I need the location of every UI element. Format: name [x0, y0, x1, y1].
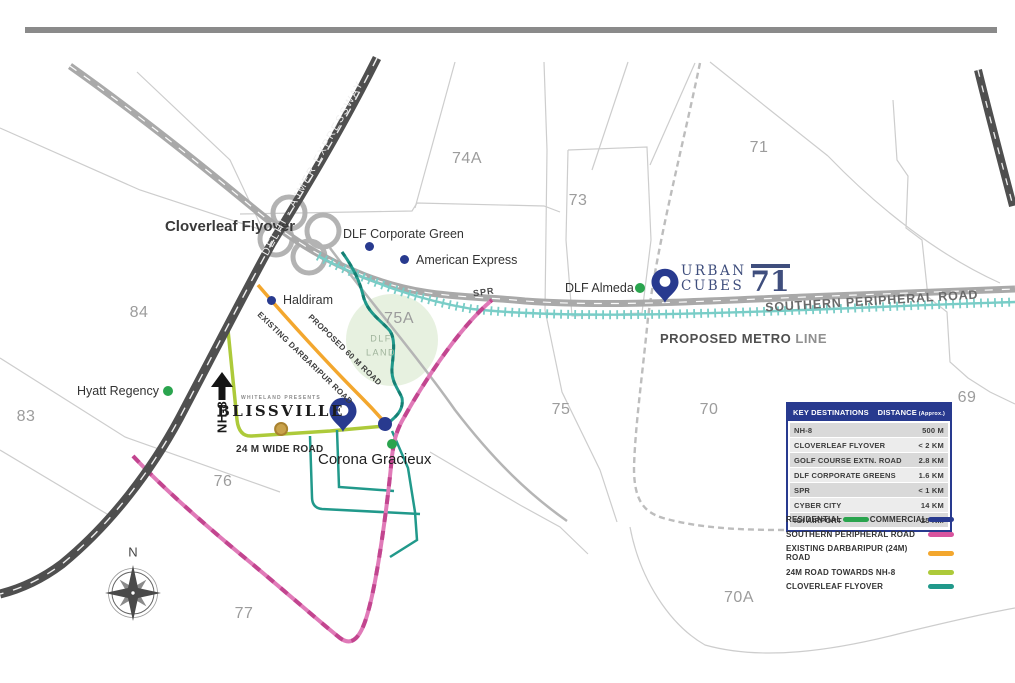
hyatt-regency-marker	[163, 386, 173, 396]
legend-row: CLOVERLEAF FLYOVER	[786, 582, 954, 591]
dlf-land-label: DLF LAND	[366, 333, 396, 360]
sector-label-69: 69	[958, 389, 977, 407]
sector-label-75: 75	[552, 401, 571, 419]
urban-cubes-line2: CUBES	[681, 279, 747, 294]
map-legend: RESIDENTIAL COMMERCIAL SOUTHERN PERIPHER…	[786, 515, 954, 597]
blissville-logo: WHITELAND PRESENTS BLISSVILLE	[217, 395, 345, 436]
legend-residential-chip	[843, 517, 869, 522]
legend-chip	[928, 551, 954, 556]
dlf-corporate-green-marker	[365, 242, 374, 251]
urban-cubes-pin	[652, 269, 679, 303]
blissville-name-label: BLISSVILLE	[217, 402, 345, 420]
sector-label-71: 71	[750, 139, 769, 157]
urban-cubes-number: 71	[751, 264, 790, 296]
key-destinations-table: KEY DESTINATIONS DISTANCE (Approx.) NH-8…	[786, 402, 952, 532]
dlf-almeda-label: DLF Almeda	[565, 281, 634, 295]
urban-cubes-logo: URBAN CUBES 71	[681, 264, 790, 296]
table-row: NH-8500 M	[790, 423, 948, 437]
header-distance: DISTANCE (Approx.)	[878, 408, 945, 417]
urban-cubes-line1: URBAN	[681, 264, 747, 279]
dlf-corporate-green-label: DLF Corporate Green	[343, 227, 464, 241]
legend-commercial-chip	[928, 517, 954, 522]
legend-row: SOUTHERN PERIPHERAL ROAD	[786, 530, 954, 539]
junction-node	[378, 417, 392, 431]
legend-commercial-label: COMMERCIAL	[870, 515, 927, 524]
proposed-60m-road-path	[330, 248, 567, 521]
legend-chip	[928, 584, 954, 589]
spr-road-path	[70, 66, 1015, 304]
table-row: DLF CORPORATE GREENS1.6 KM	[790, 468, 948, 482]
american-express-marker	[400, 255, 409, 264]
legend-chip	[928, 570, 954, 575]
haldiram-label: Haldiram	[283, 293, 333, 307]
top-right-road-path	[978, 70, 1013, 206]
corona-gracieux-marker	[387, 439, 397, 449]
blissville-presents-label: WHITELAND PRESENTS	[217, 395, 345, 401]
24m-wide-road-label: 24 M WIDE ROAD	[236, 444, 324, 455]
table-row: CYBER CITY14 KM	[790, 498, 948, 512]
sector-label-70: 70	[700, 401, 719, 419]
dlf-almeda-marker	[635, 283, 645, 293]
legend-row: EXISTING DARBARIPUR (24M) ROAD	[786, 544, 954, 562]
legend-chip	[928, 532, 954, 537]
key-destinations-header: KEY DESTINATIONS DISTANCE (Approx.)	[788, 404, 950, 421]
sector-label-83: 83	[17, 408, 36, 426]
sector-label-74a: 74A	[452, 150, 482, 168]
hyatt-regency-label: Hyatt Regency	[77, 384, 159, 398]
haldiram-marker	[267, 296, 276, 305]
header-destinations: KEY DESTINATIONS	[793, 408, 869, 417]
blissville-emblem-icon	[274, 422, 288, 436]
compass-north-label: N	[128, 545, 137, 560]
table-row: CLOVERLEAF FLYOVER< 2 KM	[790, 438, 948, 452]
sector-label-75a: 75A	[384, 310, 414, 328]
table-row: SPR< 1 KM	[790, 483, 948, 497]
sector-label-84: 84	[130, 304, 149, 322]
legend-row: 24M ROAD TOWARDS NH-8	[786, 568, 954, 577]
corona-gracieux-label: Corona Gracieux	[318, 451, 431, 468]
spr-highlight-path	[133, 300, 492, 641]
compass-icon	[105, 565, 161, 621]
legend-residential-label: RESIDENTIAL	[786, 515, 842, 524]
sector-label-73: 73	[569, 192, 588, 210]
proposed-metro-line-label: PROPOSED METRO LINE	[660, 331, 827, 346]
american-express-label: American Express	[416, 253, 517, 267]
sector-label-70a: 70A	[724, 589, 754, 607]
legend-row-zoning: RESIDENTIAL COMMERCIAL	[786, 515, 954, 524]
sector-label-76: 76	[214, 473, 233, 491]
table-row: GOLF COURSE EXTN. ROAD2.8 KM	[790, 453, 948, 467]
sector-label-77: 77	[235, 605, 254, 623]
